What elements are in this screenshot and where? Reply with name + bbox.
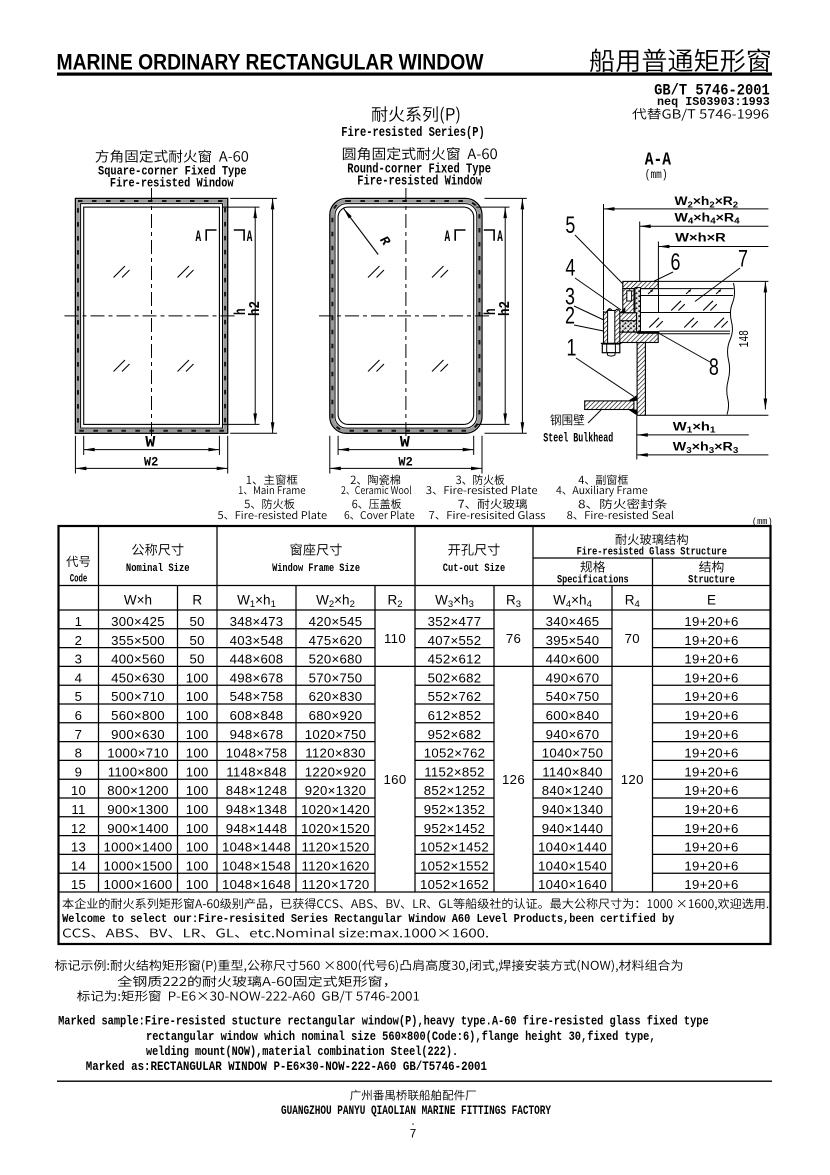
svg-text:940×1440: 940×1440 bbox=[542, 821, 603, 836]
svg-text:6: 6 bbox=[671, 248, 681, 275]
svg-text:1152×852: 1152×852 bbox=[424, 764, 484, 779]
svg-text:3: 3 bbox=[75, 652, 83, 667]
svg-text:1020×1420: 1020×1420 bbox=[301, 802, 370, 817]
svg-text:148: 148 bbox=[738, 330, 753, 347]
svg-text:Welcome to select our:Fire-res: Welcome to select our:Fire-resisited Ser… bbox=[62, 912, 675, 926]
svg-text:440×600: 440×600 bbox=[546, 652, 600, 667]
svg-text:W: W bbox=[145, 434, 156, 452]
svg-text:540×750: 540×750 bbox=[546, 689, 600, 704]
svg-text:Fire-resisted Series(P): Fire-resisted Series(P) bbox=[341, 125, 484, 141]
svg-text:11: 11 bbox=[71, 802, 85, 817]
svg-text:1040×1440: 1040×1440 bbox=[538, 840, 607, 855]
svg-text:7: 7 bbox=[410, 1128, 417, 1142]
svg-text:2: 2 bbox=[565, 302, 575, 329]
svg-text:100: 100 bbox=[186, 727, 209, 742]
svg-text:W2×h2×R2: W2×h2×R2 bbox=[675, 195, 739, 209]
svg-text:(mm): (mm) bbox=[645, 168, 668, 182]
svg-text:100: 100 bbox=[186, 840, 209, 855]
svg-text:19+20+6: 19+20+6 bbox=[684, 689, 738, 704]
svg-text:500×710: 500×710 bbox=[111, 689, 165, 704]
svg-text:1020×1520: 1020×1520 bbox=[301, 821, 370, 836]
svg-text:1120×830: 1120×830 bbox=[305, 746, 365, 761]
svg-text:W2: W2 bbox=[144, 455, 158, 470]
svg-text:Window Frame Size: Window Frame Size bbox=[272, 563, 360, 575]
svg-text:19+20+6: 19+20+6 bbox=[684, 802, 738, 817]
svg-text:19+20+6: 19+20+6 bbox=[684, 633, 738, 648]
svg-text:76: 76 bbox=[506, 631, 521, 646]
svg-text:19+20+6: 19+20+6 bbox=[684, 708, 738, 723]
svg-text:100: 100 bbox=[186, 877, 209, 892]
svg-text:940×1340: 940×1340 bbox=[542, 802, 603, 817]
svg-text:1120×1620: 1120×1620 bbox=[301, 858, 369, 873]
svg-text:50: 50 bbox=[190, 614, 205, 629]
svg-text:1048×1548: 1048×1548 bbox=[222, 858, 291, 873]
svg-text:948×1348: 948×1348 bbox=[226, 802, 287, 817]
svg-text:952×682: 952×682 bbox=[428, 727, 482, 742]
svg-text:160: 160 bbox=[384, 772, 407, 787]
svg-text:19+20+6: 19+20+6 bbox=[684, 652, 738, 667]
svg-text:355×500: 355×500 bbox=[111, 633, 165, 648]
svg-text:7: 7 bbox=[75, 727, 83, 742]
svg-text:100: 100 bbox=[186, 858, 209, 873]
svg-text:680×920: 680×920 bbox=[309, 708, 363, 723]
svg-text:19+20+6: 19+20+6 bbox=[684, 614, 738, 629]
svg-text:19+20+6: 19+20+6 bbox=[684, 840, 738, 855]
svg-text:1020×750: 1020×750 bbox=[305, 727, 366, 742]
svg-text:Cut-out Size: Cut-out Size bbox=[443, 563, 505, 575]
svg-text:12: 12 bbox=[71, 821, 86, 836]
svg-text:952×1352: 952×1352 bbox=[424, 802, 485, 817]
svg-text:948×1448: 948×1448 bbox=[226, 821, 287, 836]
svg-text:Fire-resisted Window: Fire-resisted Window bbox=[110, 176, 234, 191]
svg-text:395×540: 395×540 bbox=[546, 633, 600, 648]
svg-text:1052×762: 1052×762 bbox=[424, 746, 485, 761]
svg-text:1052×1452: 1052×1452 bbox=[420, 840, 489, 855]
svg-text:Specifications: Specifications bbox=[557, 574, 629, 586]
svg-text:5: 5 bbox=[565, 211, 575, 238]
svg-text:1100×800: 1100×800 bbox=[108, 764, 168, 779]
svg-text:100: 100 bbox=[186, 783, 209, 798]
svg-text:19+20+6: 19+20+6 bbox=[684, 821, 738, 836]
svg-text:1140×840: 1140×840 bbox=[542, 764, 602, 779]
svg-text:1040×750: 1040×750 bbox=[542, 746, 603, 761]
svg-text:13: 13 bbox=[71, 840, 86, 855]
svg-text:Steel Bulkhead: Steel Bulkhead bbox=[543, 431, 613, 445]
svg-text:620×830: 620×830 bbox=[309, 689, 363, 704]
svg-text:1052×1552: 1052×1552 bbox=[420, 858, 489, 873]
svg-text:570×750: 570×750 bbox=[309, 670, 363, 685]
svg-text:R4: R4 bbox=[625, 593, 640, 611]
svg-text:W1×h1: W1×h1 bbox=[673, 421, 716, 435]
svg-text:neq IS03903:1993: neq IS03903:1993 bbox=[657, 95, 770, 109]
svg-text:W2: W2 bbox=[398, 455, 412, 470]
svg-text:Fire-resisted Glass Structure: Fire-resisted Glass Structure bbox=[577, 547, 727, 559]
svg-text:A: A bbox=[445, 228, 451, 246]
svg-text:403×548: 403×548 bbox=[230, 633, 284, 648]
svg-text:Marked sample:Fire-resisted st: Marked sample:Fire-resisted stucture rec… bbox=[58, 1014, 709, 1028]
svg-text:1000×710: 1000×710 bbox=[107, 746, 168, 761]
svg-text:348×473: 348×473 bbox=[230, 614, 284, 629]
svg-text:940×670: 940×670 bbox=[546, 727, 600, 742]
svg-text:10: 10 bbox=[71, 783, 86, 798]
svg-text:520×680: 520×680 bbox=[309, 652, 363, 667]
svg-text:100: 100 bbox=[186, 670, 209, 685]
svg-text:1120×1720: 1120×1720 bbox=[301, 877, 369, 892]
svg-text:4: 4 bbox=[75, 670, 83, 685]
svg-text:W×h: W×h bbox=[124, 593, 152, 608]
svg-text:R: R bbox=[376, 233, 393, 248]
svg-text:420×545: 420×545 bbox=[309, 614, 363, 629]
svg-text:100: 100 bbox=[186, 764, 209, 779]
svg-text:1148×848: 1148×848 bbox=[226, 764, 286, 779]
svg-text:4: 4 bbox=[565, 254, 575, 281]
svg-text:R2: R2 bbox=[387, 593, 402, 611]
svg-text:100: 100 bbox=[186, 821, 209, 836]
svg-text:W4×h4×R4: W4×h4×R4 bbox=[675, 211, 741, 225]
svg-text:GUANGZHOU PANYU QIAOLIAN MARIN: GUANGZHOU PANYU QIAOLIAN MARINE FITTINGS… bbox=[281, 1103, 551, 1118]
svg-text:1: 1 bbox=[75, 614, 83, 629]
svg-text:19+20+6: 19+20+6 bbox=[684, 764, 738, 779]
svg-text:450×630: 450×630 bbox=[111, 670, 165, 685]
svg-text:900×1400: 900×1400 bbox=[107, 821, 168, 836]
svg-text:8: 8 bbox=[75, 746, 83, 761]
svg-text:1048×758: 1048×758 bbox=[226, 746, 287, 761]
svg-text:70: 70 bbox=[625, 631, 640, 646]
svg-text:1048×1648: 1048×1648 bbox=[222, 877, 291, 892]
svg-text:50: 50 bbox=[190, 652, 205, 667]
svg-text:19+20+6: 19+20+6 bbox=[684, 877, 738, 892]
svg-text:475×620: 475×620 bbox=[309, 633, 363, 648]
svg-text:MARINE ORDINARY RECTANGULAR WI: MARINE ORDINARY RECTANGULAR WINDOW bbox=[57, 49, 484, 74]
svg-text:100: 100 bbox=[186, 689, 209, 704]
svg-text:W: W bbox=[400, 434, 411, 452]
svg-text:126: 126 bbox=[502, 772, 525, 787]
svg-text:352×477: 352×477 bbox=[428, 614, 482, 629]
svg-text:1040×1640: 1040×1640 bbox=[538, 877, 607, 892]
svg-text:548×758: 548×758 bbox=[230, 689, 284, 704]
svg-text:W×h×R: W×h×R bbox=[675, 231, 726, 244]
svg-text:100: 100 bbox=[186, 708, 209, 723]
svg-text:h2: h2 bbox=[248, 301, 264, 316]
svg-text:608×848: 608×848 bbox=[230, 708, 284, 723]
svg-text:560×800: 560×800 bbox=[111, 708, 165, 723]
svg-text:rectangular window which nomin: rectangular window which nominal size 56… bbox=[146, 1030, 656, 1044]
svg-text:900×1300: 900×1300 bbox=[107, 802, 168, 817]
svg-text:A: A bbox=[247, 228, 253, 246]
svg-text:340×465: 340×465 bbox=[546, 614, 600, 629]
svg-text:W3×h3: W3×h3 bbox=[435, 593, 474, 611]
svg-text:1000×1600: 1000×1600 bbox=[103, 877, 172, 892]
svg-text:15: 15 bbox=[71, 877, 86, 892]
svg-text:W4×h4: W4×h4 bbox=[553, 593, 592, 611]
svg-text:1052×1652: 1052×1652 bbox=[420, 877, 489, 892]
svg-text:A: A bbox=[497, 228, 503, 246]
svg-text:Fire-resisted Window: Fire-resisted Window bbox=[357, 175, 482, 190]
svg-text:19+20+6: 19+20+6 bbox=[684, 746, 738, 761]
svg-text:9: 9 bbox=[75, 764, 83, 779]
svg-text:Nominal Size: Nominal Size bbox=[126, 563, 190, 575]
svg-text:840×1240: 840×1240 bbox=[542, 783, 603, 798]
svg-text:952×1452: 952×1452 bbox=[424, 821, 485, 836]
svg-text:498×678: 498×678 bbox=[230, 670, 284, 685]
svg-text:Code: Code bbox=[70, 574, 88, 586]
svg-text:448×608: 448×608 bbox=[230, 652, 284, 667]
svg-text:6: 6 bbox=[75, 708, 83, 723]
svg-text:600×840: 600×840 bbox=[546, 708, 600, 723]
svg-text:848×1248: 848×1248 bbox=[226, 783, 287, 798]
svg-text:Structure: Structure bbox=[688, 574, 735, 586]
svg-text:920×1320: 920×1320 bbox=[305, 783, 366, 798]
svg-text:1000×1400: 1000×1400 bbox=[103, 840, 172, 855]
svg-text:A: A bbox=[196, 228, 202, 246]
svg-text:Marked as:RECTANGULAR WINDOW: Marked as:RECTANGULAR WINDOW P-E6×30-NOW… bbox=[86, 1060, 487, 1074]
svg-text:19+20+6: 19+20+6 bbox=[684, 783, 738, 798]
svg-text:2: 2 bbox=[75, 633, 83, 648]
svg-text:50: 50 bbox=[190, 633, 205, 648]
svg-text:612×852: 612×852 bbox=[428, 708, 482, 723]
svg-text:1120×1520: 1120×1520 bbox=[301, 840, 369, 855]
svg-text:h2: h2 bbox=[498, 301, 514, 316]
svg-text:1: 1 bbox=[566, 334, 576, 361]
svg-text:R3: R3 bbox=[506, 593, 521, 611]
svg-text:110: 110 bbox=[384, 631, 406, 646]
svg-text:W2×h2: W2×h2 bbox=[316, 593, 355, 611]
svg-text:400×560: 400×560 bbox=[111, 652, 165, 667]
svg-text:490×670: 490×670 bbox=[546, 670, 600, 685]
svg-text:E: E bbox=[707, 593, 716, 608]
svg-text:852×1252: 852×1252 bbox=[424, 783, 485, 798]
svg-text:120: 120 bbox=[621, 772, 644, 787]
svg-text:1000×1500: 1000×1500 bbox=[103, 858, 172, 873]
svg-text:100: 100 bbox=[186, 802, 209, 817]
svg-text:5: 5 bbox=[75, 689, 83, 704]
svg-text:800×1200: 800×1200 bbox=[107, 783, 168, 798]
svg-text:900×630: 900×630 bbox=[111, 727, 165, 742]
svg-text:welding mount(NOW),material co: welding mount(NOW),material combination … bbox=[146, 1045, 458, 1059]
svg-text:14: 14 bbox=[71, 858, 86, 873]
svg-text:948×678: 948×678 bbox=[230, 727, 284, 742]
svg-text:452×612: 452×612 bbox=[428, 652, 482, 667]
svg-text:R: R bbox=[192, 593, 202, 608]
svg-text:W1×h1: W1×h1 bbox=[237, 593, 276, 611]
svg-text:19+20+6: 19+20+6 bbox=[684, 670, 738, 685]
svg-text:1220×920: 1220×920 bbox=[305, 764, 366, 779]
svg-text:502×682: 502×682 bbox=[428, 670, 482, 685]
svg-text:19+20+6: 19+20+6 bbox=[684, 727, 738, 742]
svg-text:1048×1448: 1048×1448 bbox=[222, 840, 291, 855]
svg-text:19+20+6: 19+20+6 bbox=[684, 858, 738, 873]
svg-text:8: 8 bbox=[709, 353, 719, 380]
svg-text:100: 100 bbox=[186, 746, 209, 761]
svg-text:407×552: 407×552 bbox=[428, 633, 482, 648]
svg-text:300×425: 300×425 bbox=[111, 614, 165, 629]
svg-text:552×762: 552×762 bbox=[428, 689, 482, 704]
svg-text:W3×h3×R3: W3×h3×R3 bbox=[673, 441, 739, 455]
svg-text:1040×1540: 1040×1540 bbox=[538, 858, 607, 873]
